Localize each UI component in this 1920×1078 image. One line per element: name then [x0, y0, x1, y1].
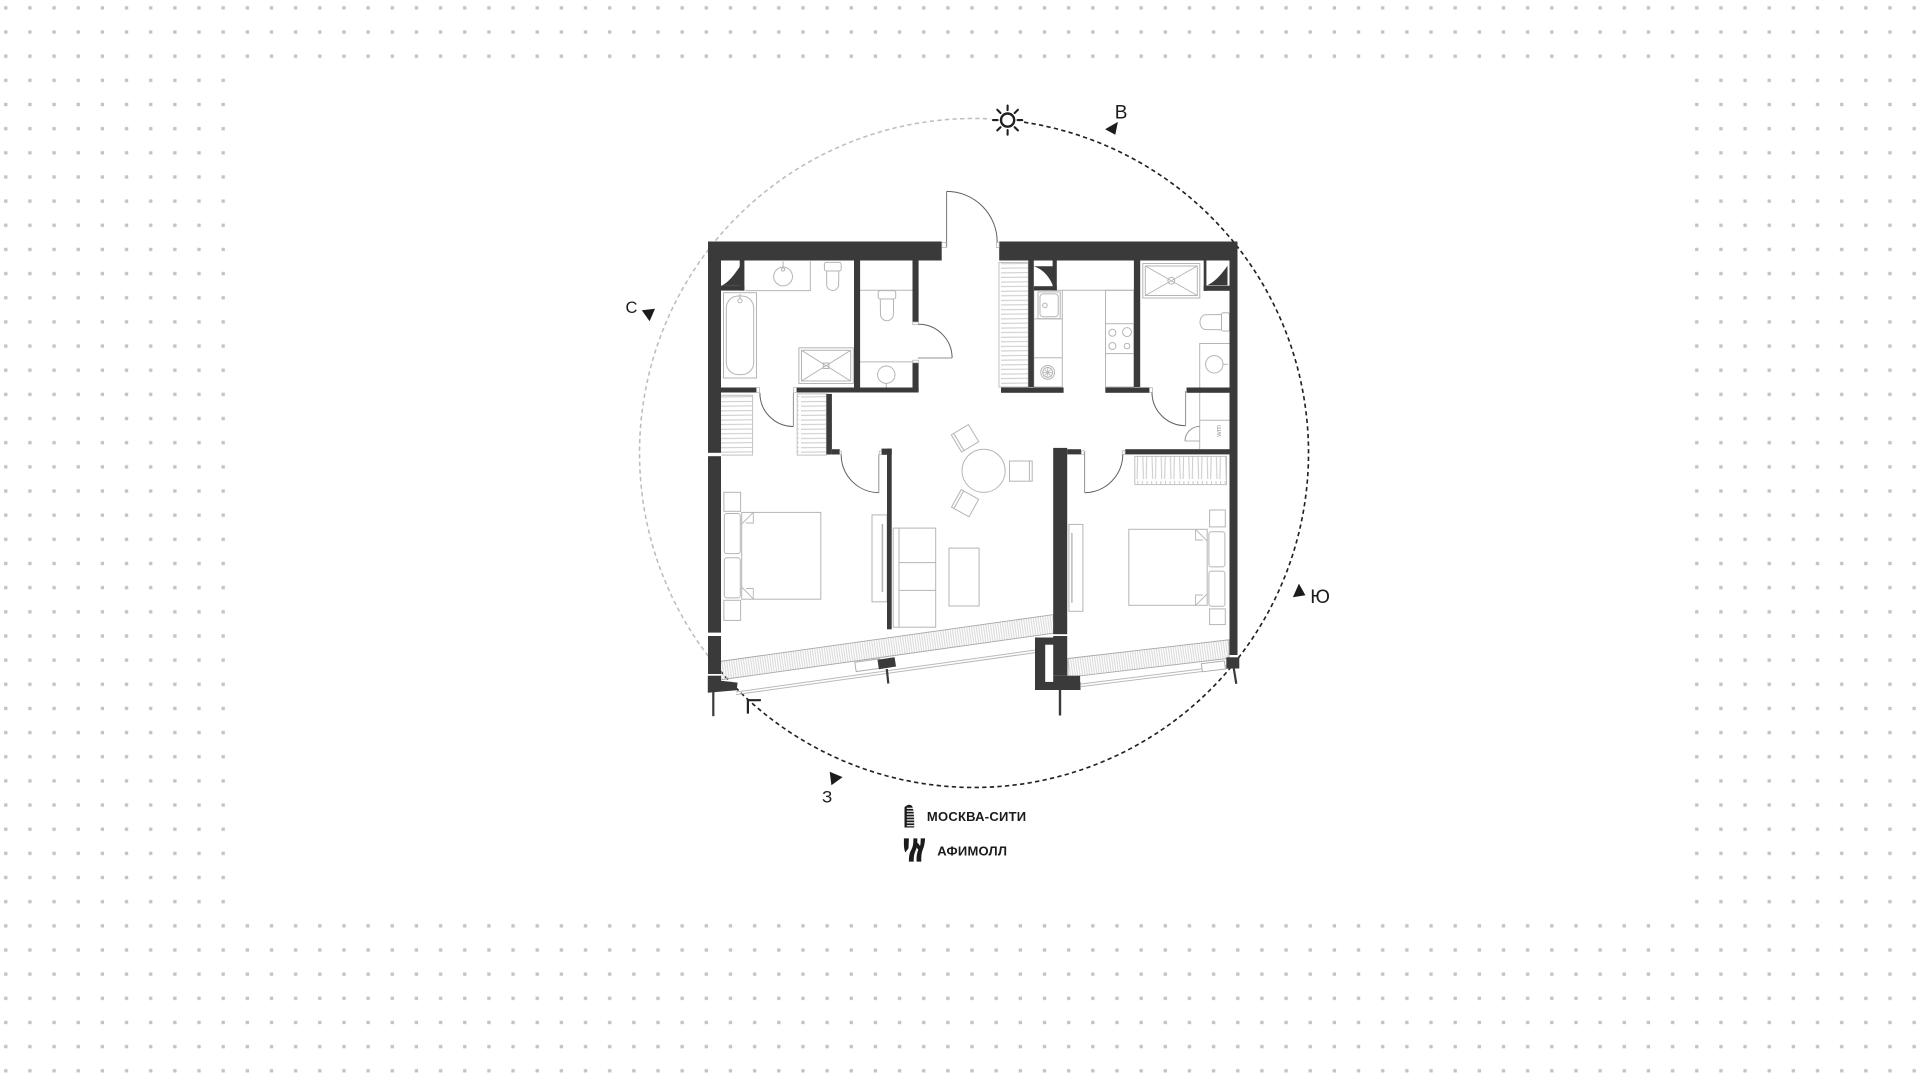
svg-text:З: З	[822, 787, 832, 806]
svg-text:С: С	[626, 299, 638, 317]
svg-text:wm: wm	[1214, 425, 1223, 438]
svg-text:МОСКВА-СИТИ: МОСКВА-СИТИ	[927, 809, 1027, 824]
svg-text:Ю: Ю	[1310, 586, 1330, 608]
svg-text:АФИМОЛЛ: АФИМОЛЛ	[937, 844, 1007, 859]
svg-text:В: В	[1115, 103, 1128, 124]
